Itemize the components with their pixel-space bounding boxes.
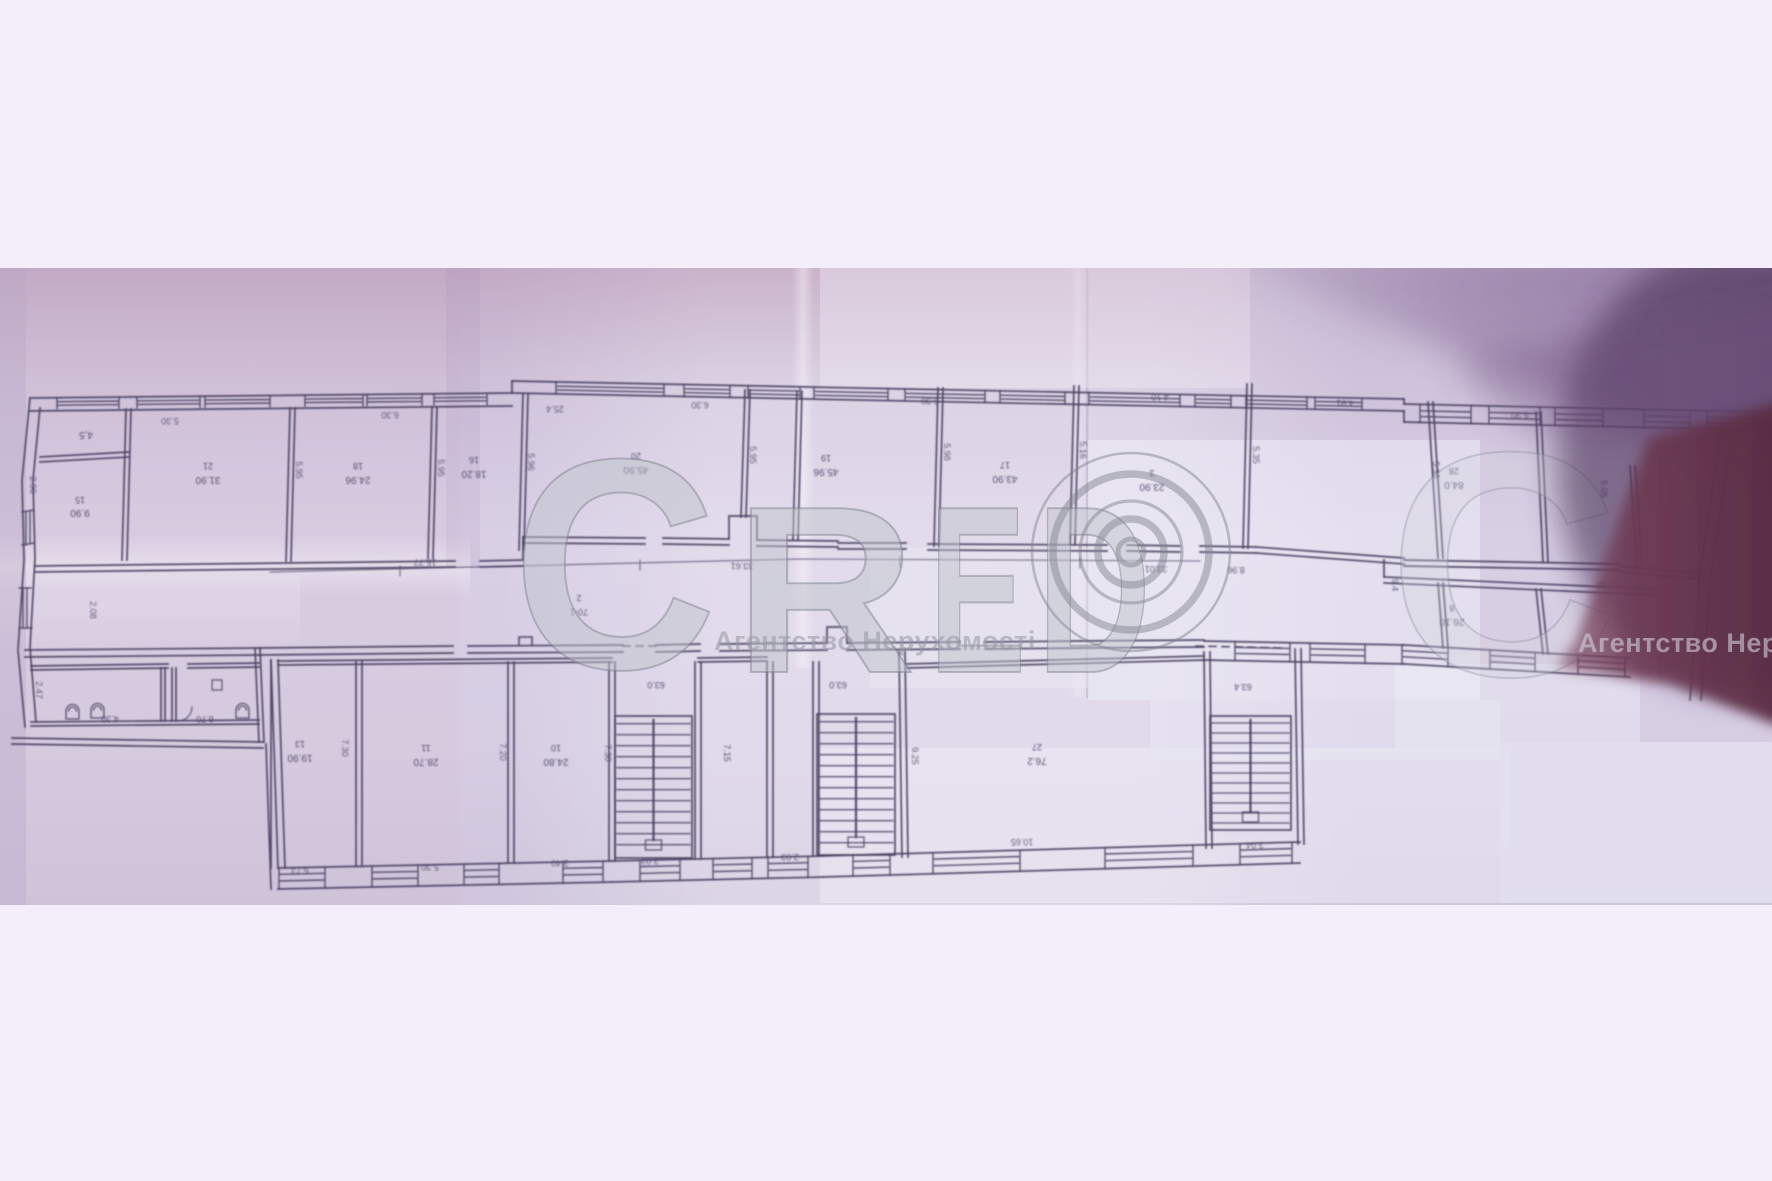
svg-text:5.95: 5.95 — [436, 459, 446, 477]
svg-text:6.70: 6.70 — [196, 714, 214, 724]
svg-text:10: 10 — [551, 743, 561, 753]
svg-text:15.77: 15.77 — [414, 557, 437, 567]
svg-text:5.30: 5.30 — [921, 396, 939, 406]
svg-text:2.96: 2.96 — [28, 476, 38, 494]
svg-text:24.96: 24.96 — [345, 474, 370, 485]
svg-text:2.08: 2.08 — [88, 601, 98, 619]
svg-text:6.30: 6.30 — [381, 410, 399, 420]
svg-text:63.4: 63.4 — [1234, 682, 1252, 692]
svg-text:D: D — [1037, 458, 1151, 723]
svg-text:5.16: 5.16 — [1078, 441, 1088, 459]
svg-text:2.47: 2.47 — [34, 681, 44, 699]
svg-text:7.15: 7.15 — [722, 744, 732, 762]
svg-text:9.90: 9.90 — [70, 507, 90, 518]
svg-text:10.65: 10.65 — [1011, 837, 1034, 847]
svg-text:C: C — [512, 396, 717, 732]
svg-text:15: 15 — [75, 495, 85, 505]
svg-text:9.25: 9.25 — [910, 747, 920, 765]
svg-text:16: 16 — [469, 455, 479, 465]
svg-text:11: 11 — [421, 743, 430, 753]
svg-text:Агентство Нерухомості: Агентство Нерухомості — [714, 626, 1036, 656]
svg-text:18.20: 18.20 — [461, 468, 486, 479]
svg-text:3.04: 3.04 — [1246, 840, 1264, 850]
svg-text:13: 13 — [295, 739, 305, 749]
svg-text:5.30: 5.30 — [421, 862, 439, 872]
svg-text:5.35: 5.35 — [1251, 446, 1261, 464]
svg-text:19.90: 19.90 — [287, 752, 312, 763]
svg-text:4.91: 4.91 — [1336, 398, 1354, 408]
svg-text:27: 27 — [1032, 742, 1042, 752]
svg-text:3.40: 3.40 — [551, 858, 569, 868]
svg-text:3.03: 3.03 — [641, 856, 659, 866]
svg-text:Агентство Нерухомості: Агентство Нерухомості — [1578, 628, 1772, 658]
svg-text:5.95: 5.95 — [294, 461, 304, 479]
svg-text:76.2: 76.2 — [1027, 755, 1047, 766]
svg-text:7.30: 7.30 — [603, 744, 613, 762]
svg-text:E: E — [929, 458, 1026, 723]
svg-text:2.03: 2.03 — [781, 852, 799, 862]
svg-text:21: 21 — [203, 461, 213, 471]
svg-text:5.30: 5.30 — [161, 416, 179, 426]
svg-text:7.20: 7.20 — [498, 743, 508, 761]
svg-text:24.80: 24.80 — [543, 756, 568, 767]
svg-text:6.73: 6.73 — [291, 866, 309, 876]
svg-text:7.30: 7.30 — [340, 739, 350, 757]
svg-text:4.10: 4.10 — [1151, 392, 1169, 402]
svg-text:31.90: 31.90 — [195, 474, 220, 485]
svg-text:4.30: 4.30 — [101, 714, 119, 724]
svg-text:18: 18 — [353, 461, 363, 471]
svg-text:R: R — [734, 458, 916, 723]
svg-text:4,5: 4,5 — [79, 429, 93, 440]
svg-text:28.70: 28.70 — [413, 756, 438, 767]
